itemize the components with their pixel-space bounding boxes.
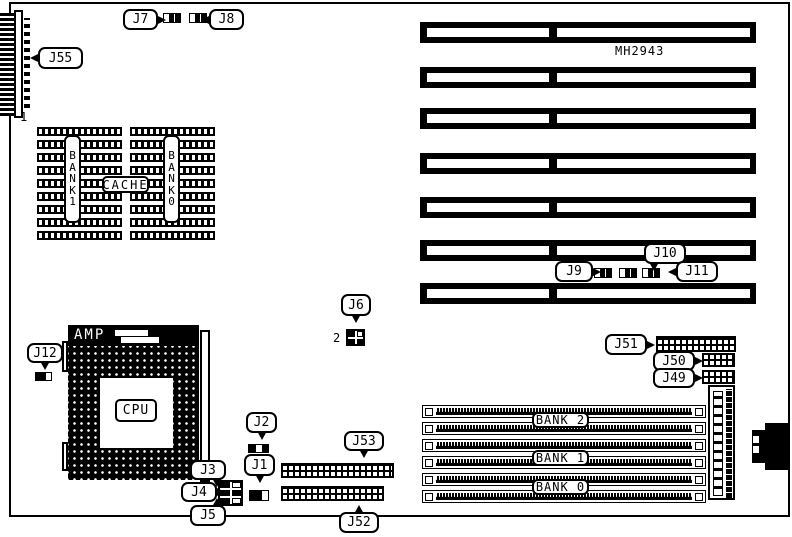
simm-latch: [695, 493, 703, 501]
callout-j55-text: J55: [49, 51, 72, 66]
callout-j1-text: J1: [252, 458, 268, 473]
isa-slot: [420, 240, 756, 261]
callout-j51-text: J51: [614, 337, 637, 352]
isa-slot-inset: [557, 114, 750, 123]
j49-header: [702, 370, 735, 384]
callout-j7-text: J7: [133, 12, 149, 27]
keyboard-connector-pin: [753, 446, 759, 453]
simm-latch: [695, 408, 703, 416]
cache-bank0-label: BANK0: [163, 135, 180, 223]
simm-latch: [425, 459, 433, 467]
callout-j2: J2: [246, 412, 277, 433]
callout-j9: J9: [555, 261, 593, 282]
pointer-down-icon: [359, 449, 369, 458]
isa-slot-inset: [427, 203, 549, 212]
isa-slot-inset: [427, 159, 549, 168]
pointer-right-icon: [645, 340, 655, 350]
simm-latch: [425, 442, 433, 450]
socket-brand-label: AMP: [74, 327, 105, 343]
callout-j49: J49: [653, 368, 695, 388]
callout-j4-text: J4: [191, 485, 207, 500]
cache-chip: [130, 231, 215, 240]
callout-j12-text: J12: [33, 346, 56, 361]
isa-slot-inset: [427, 73, 549, 82]
simm-latch: [695, 442, 703, 450]
callout-j53: J53: [344, 431, 384, 451]
pointer-left-icon: [668, 267, 678, 277]
callout-j50-text: J50: [662, 354, 685, 369]
cache-label: CACHE: [102, 176, 149, 193]
isa-slot-inset: [427, 114, 549, 123]
pointer-down-icon: [649, 262, 659, 271]
socket-notch: [121, 337, 159, 343]
isa-slot-inset: [557, 203, 750, 212]
j55-connector-body: [14, 10, 23, 118]
callout-j3: J3: [190, 460, 226, 480]
isa-slot-inset: [557, 28, 750, 37]
jumper-pin: [232, 482, 242, 488]
isa-slot: [420, 67, 756, 88]
isa-slot-inset: [557, 289, 750, 298]
pointer-up-icon: [212, 498, 222, 507]
j10-jumper: [619, 268, 637, 278]
pointer-down-icon: [351, 314, 361, 323]
isa-slot-inset: [427, 28, 549, 37]
cache-bank1-label: BANK1: [64, 135, 81, 223]
isa-slot: [420, 108, 756, 129]
j55-connector-pins: [0, 13, 15, 116]
jumper-pin: [348, 331, 355, 337]
callout-j2-text: J2: [254, 415, 270, 430]
simm-latch: [425, 425, 433, 433]
pointer-down-icon: [257, 431, 267, 440]
isa-slot-inset: [557, 159, 750, 168]
j55-connector-contacts: [24, 18, 30, 108]
pointer-up-icon: [354, 505, 364, 514]
isa-slot: [420, 197, 756, 218]
simm-bank0-label: BANK 0: [532, 479, 589, 495]
power-connector: [708, 385, 735, 500]
j50-header: [702, 353, 735, 367]
callout-j11: J11: [676, 261, 718, 282]
callout-j52-text: J52: [347, 515, 370, 530]
j1-jumper: [249, 490, 269, 501]
pointer-right-icon: [215, 487, 225, 497]
power-connector-pins: [713, 391, 723, 496]
callout-j11-text: J11: [685, 264, 708, 279]
jumper-pin: [357, 339, 364, 345]
jumper-pin: [232, 490, 242, 496]
pointer-down-icon: [255, 474, 265, 483]
power-connector-keys: [726, 389, 732, 498]
pointer-left-icon: [201, 15, 211, 25]
callout-j5: J5: [190, 505, 226, 526]
callout-j8-text: J8: [219, 12, 235, 27]
keyboard-connector: [765, 423, 790, 470]
callout-j7: J7: [123, 9, 158, 30]
j51-header: [656, 336, 736, 352]
callout-j49-text: J49: [662, 371, 685, 386]
pointer-right-icon: [693, 373, 703, 383]
j2-jumper: [248, 444, 269, 453]
callout-j9-text: J9: [566, 264, 582, 279]
simm-bank2-label: BANK 2: [532, 412, 589, 428]
callout-j10-text: J10: [653, 246, 676, 261]
callout-j55: J55: [38, 47, 83, 69]
jumper-pin: [348, 339, 355, 345]
simm-latch: [695, 425, 703, 433]
cache-chip: [37, 231, 122, 240]
cache-chip: [37, 127, 122, 136]
jumper-pin: [357, 331, 364, 337]
simm-latch: [425, 476, 433, 484]
j52-header: [281, 486, 384, 501]
callout-j6: J6: [341, 294, 371, 316]
callout-j8: J8: [209, 9, 244, 30]
simm-latch: [425, 408, 433, 416]
socket-notch: [115, 330, 148, 336]
pointer-right-icon: [156, 15, 166, 25]
cpu-socket-top-bar: AMP: [68, 325, 199, 346]
pointer-down-icon: [40, 361, 50, 370]
callout-j3-text: J3: [200, 463, 216, 478]
callout-j5-text: J5: [200, 508, 216, 523]
isa-slot: [420, 153, 756, 174]
part-number: MH2943: [615, 44, 664, 58]
isa-slot-inset: [557, 73, 750, 82]
j12-jumper: [35, 372, 52, 381]
callout-j12: J12: [27, 343, 63, 363]
simm-contacts: [436, 442, 692, 449]
isa-slot-inset: [427, 246, 549, 255]
simm-bank1-label: BANK 1: [532, 450, 589, 466]
callout-j6-text: J6: [348, 298, 364, 313]
callout-j1: J1: [244, 454, 275, 476]
j6-jumper: [346, 329, 365, 346]
cpu-label: CPU: [115, 399, 157, 422]
pointer-left-icon: [30, 53, 40, 63]
simm-latch: [695, 459, 703, 467]
keyboard-connector-pin: [753, 436, 759, 443]
isa-slot-inset: [427, 289, 549, 298]
isa-slot: [420, 283, 756, 304]
simm-latch: [425, 493, 433, 501]
callout-j53-text: J53: [352, 434, 375, 449]
motherboard-diagram: MH2943 BANK1 BANK0 CACHE AMP CPU 1 2 BAN…: [0, 0, 792, 537]
j55-pin1-marker: 1: [20, 110, 27, 124]
pointer-right-icon: [591, 267, 601, 277]
callout-j51: J51: [605, 334, 647, 355]
pointer-right-icon: [693, 356, 703, 366]
j53-header: [281, 463, 394, 478]
callout-j52: J52: [339, 512, 379, 533]
j6-pin2-marker: 2: [333, 331, 340, 345]
simm-latch: [695, 476, 703, 484]
isa-slot: [420, 22, 756, 43]
jumper-pin: [232, 498, 242, 504]
